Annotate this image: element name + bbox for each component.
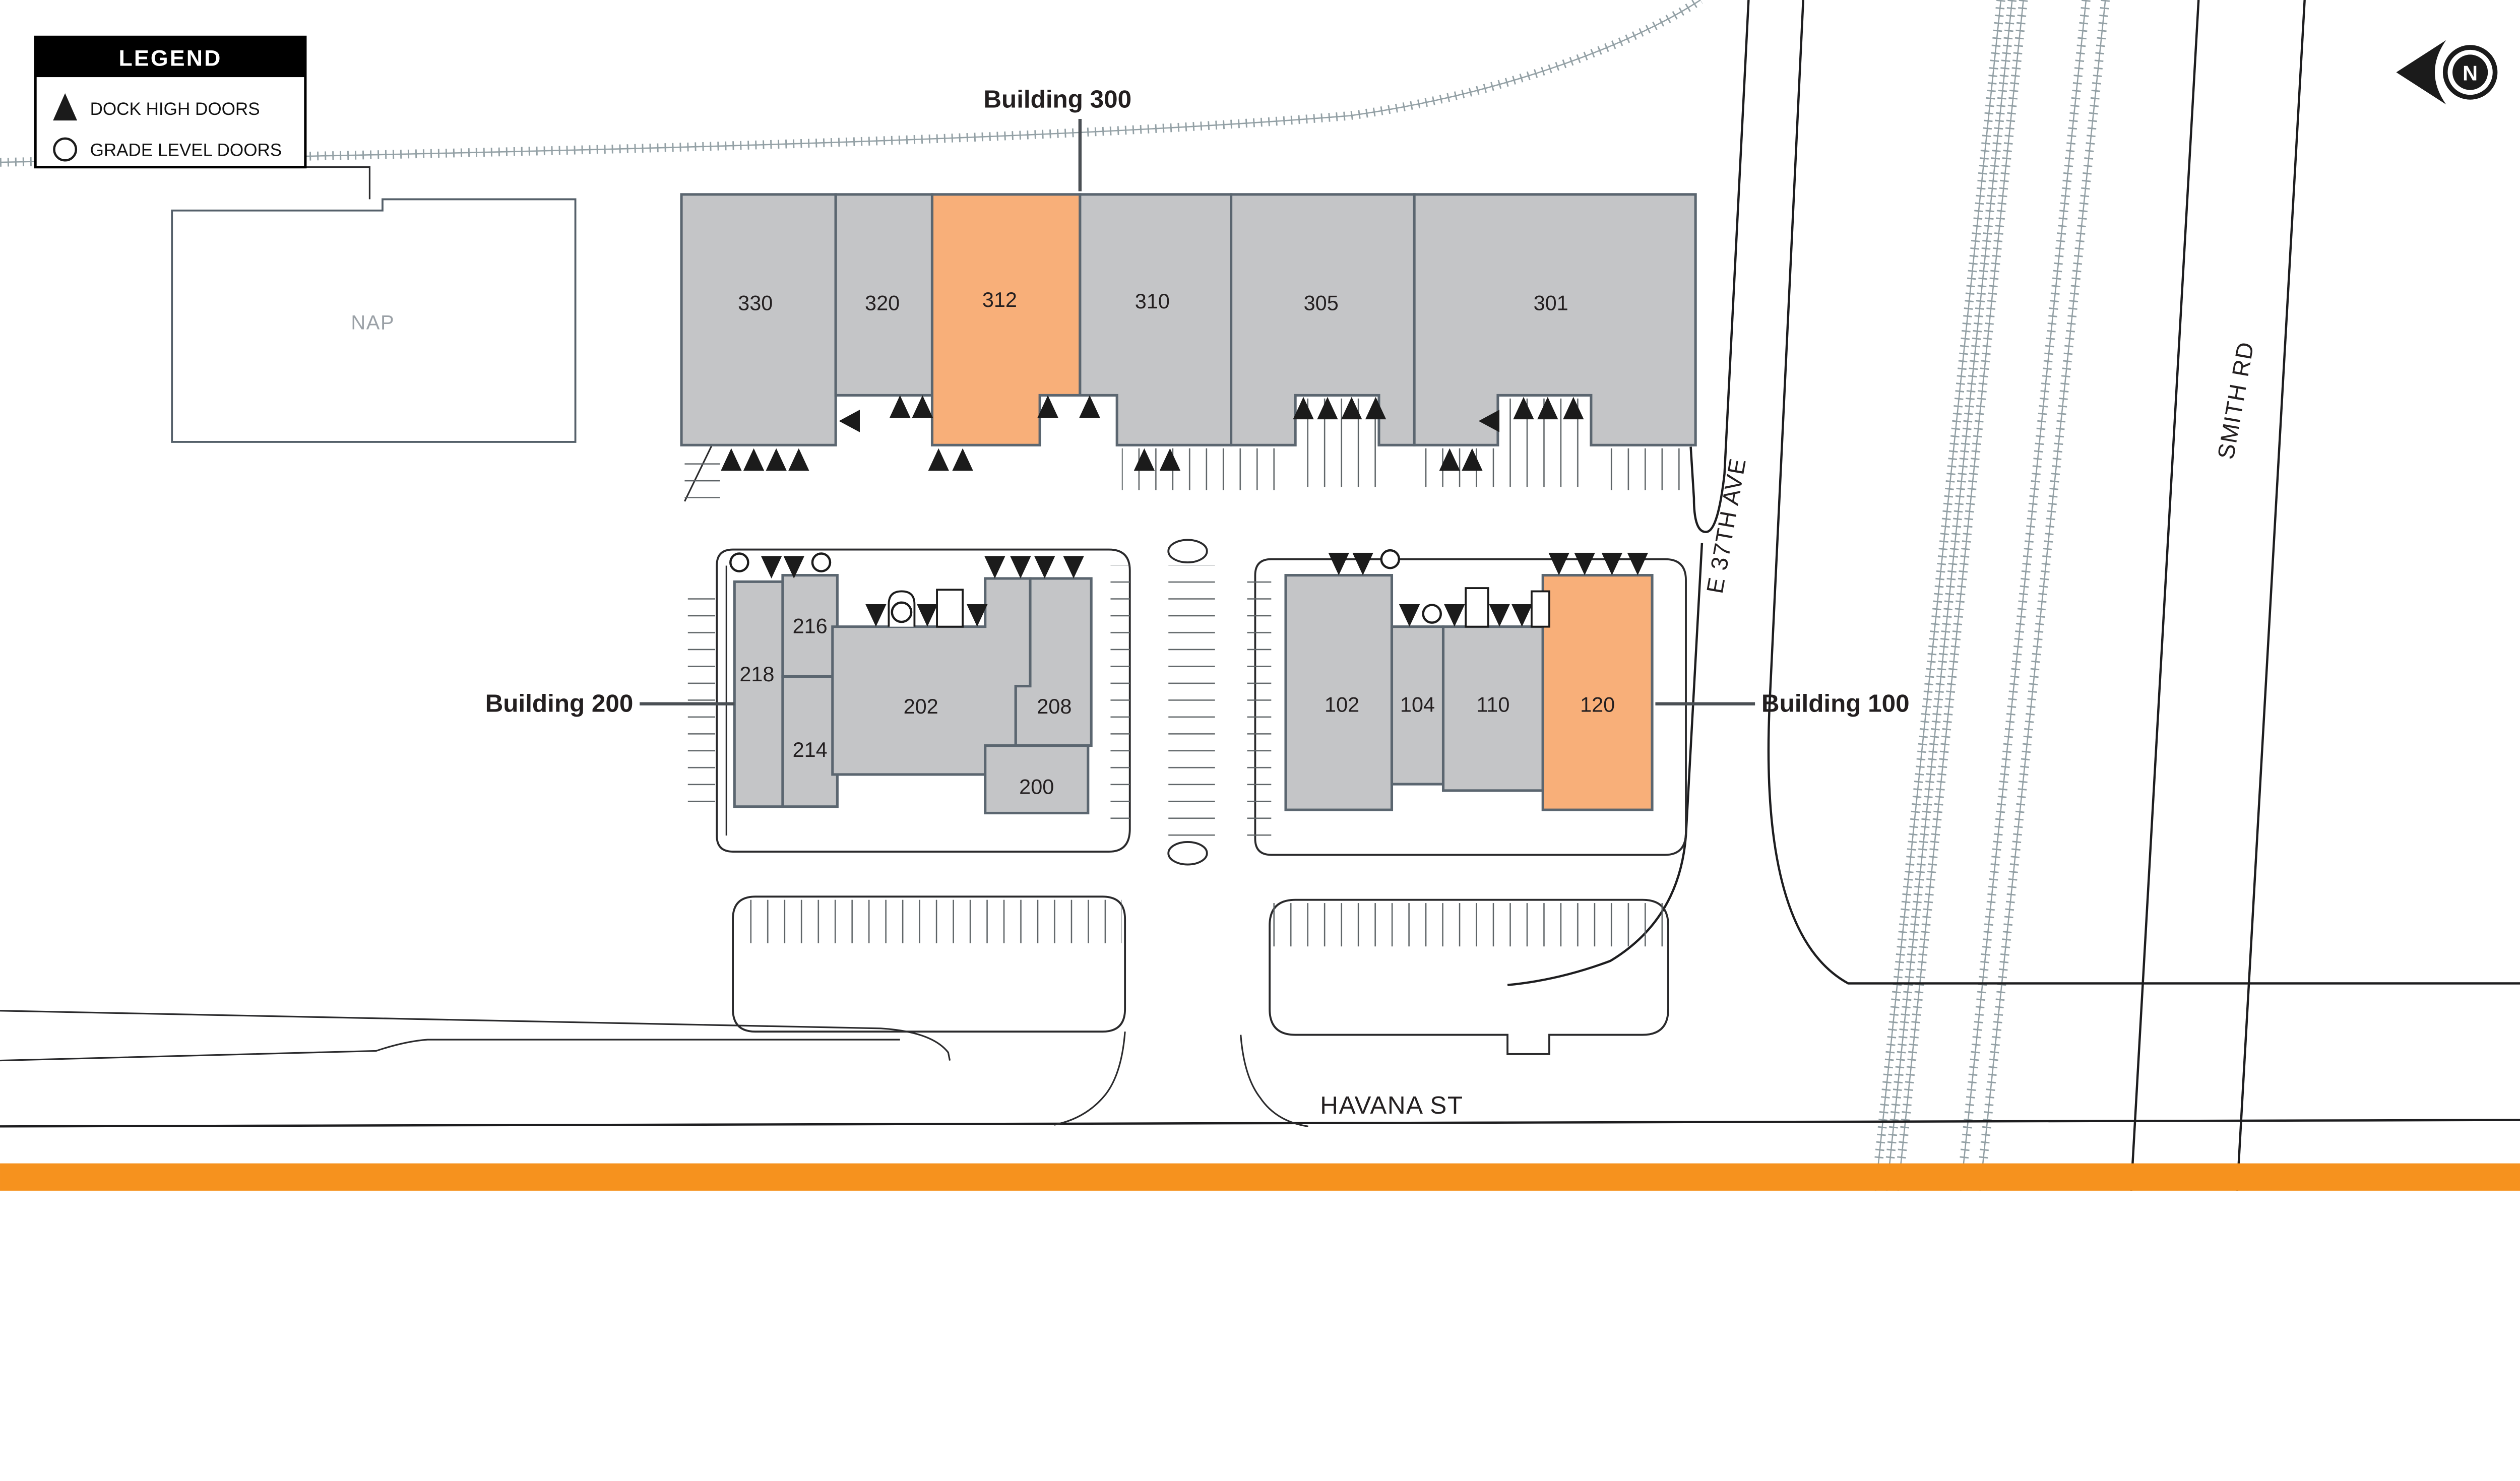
unit-301-label: 301: [1534, 291, 1568, 314]
site-plan-svg: NAP 330 320 312 310: [0, 0, 2520, 1191]
building-100-label: Building 100: [1761, 690, 1910, 718]
dock-high-door-icon: [1548, 553, 1569, 575]
unit-305-label: 305: [1304, 291, 1339, 314]
unit-214-label: 214: [793, 738, 828, 761]
road-e-37th-ave: [1507, 0, 2520, 985]
dock-high-door-icon: [1489, 604, 1509, 627]
dock-high-door-icon: [1511, 604, 1532, 627]
roof-access-bump: [1466, 588, 1488, 627]
dock-high-door-icon: [1063, 556, 1084, 578]
e37-east-curb: [1769, 0, 2520, 984]
dock-high-door-icon: [721, 448, 741, 471]
railroad-track-lines: [1875, 0, 2105, 1191]
dock-high-door-icon: [1010, 556, 1031, 578]
unit-110-label: 110: [1476, 693, 1509, 717]
island-oval: [1168, 540, 1207, 562]
havana-south-edge: [0, 1120, 2520, 1127]
grade-level-door-icon: [1381, 550, 1399, 568]
road-havana-st: [0, 1011, 2520, 1127]
street-label-e-37th-ave: E 37TH AVE: [1702, 456, 1751, 596]
nap-label: NAP: [351, 312, 395, 334]
dock-high-door-icon: [952, 448, 973, 471]
street-label-smith-rd: SMITH RD: [2213, 340, 2259, 462]
roof-access-bump: [937, 590, 963, 626]
grade-level-door-icon: [812, 554, 830, 571]
site-plan: NAP 330 320 312 310: [0, 0, 2520, 1191]
legend-box: LEGEND DOCK HIGH DOORS GRADE LEVEL DOORS: [35, 37, 305, 167]
dock-high-door-icon: [839, 410, 860, 432]
building-200: 218 216 214 202 208 200: [730, 554, 1091, 813]
e37-west-curb: [1691, 0, 1749, 532]
unit-310: [1080, 195, 1231, 445]
dock-high-door-icon: [1034, 556, 1055, 578]
dock-high-door-icon: [761, 556, 782, 578]
dock-high-door-icon: [984, 556, 1005, 578]
dock-high-door-icon: [743, 448, 764, 471]
dock-high-door-icon: [1627, 553, 1648, 575]
dock-high-door-icon: [788, 448, 809, 471]
dock-high-door-icon: [1399, 604, 1420, 627]
island-oval: [1168, 842, 1207, 865]
unit-218-label: 218: [739, 662, 774, 686]
unit-104-label: 104: [1400, 693, 1435, 717]
dock-high-door-icon: [1602, 553, 1622, 575]
dock-high-door-icon: [1079, 395, 1100, 418]
unit-120-label: 120: [1580, 693, 1615, 717]
unit-202-label: 202: [904, 694, 938, 718]
grade-level-door-icon: [54, 139, 76, 160]
dock-high-door-icon: [1329, 553, 1349, 575]
road-smith-rd: [2131, 0, 2304, 1191]
dock-high-door-icon: [912, 395, 933, 418]
accent-strip: [0, 1164, 2520, 1191]
grade-level-door-icon: [730, 554, 748, 571]
unit-310-label: 310: [1135, 289, 1170, 313]
unit-320-label: 320: [865, 291, 900, 314]
grade-level-door-icon: [1423, 605, 1441, 623]
unit-208-label: 208: [1037, 694, 1072, 718]
grade-level-door-icon: [892, 603, 911, 622]
legend-title: LEGEND: [118, 46, 222, 71]
unit-312-label: 312: [982, 288, 1017, 311]
dock-high-door-icon: [917, 604, 937, 627]
dock-high-door-icon: [890, 395, 910, 418]
smith-east-edge: [2237, 0, 2305, 1191]
north-arrow-label: N: [2463, 61, 2478, 85]
smith-west-edge: [2131, 0, 2198, 1191]
roof-access-bump: [1532, 591, 1549, 626]
dock-high-door-icon: [1352, 553, 1373, 575]
street-label-havana-st: HAVANA ST: [1320, 1091, 1463, 1119]
building-300-label: Building 300: [983, 86, 1131, 113]
building-200-label: Building 200: [485, 690, 634, 718]
north-arrow-crescent-icon: [2396, 40, 2446, 105]
north-arrow: N: [2396, 40, 2495, 105]
unit-330: [681, 195, 836, 445]
unit-330-label: 330: [738, 291, 773, 314]
nap-building: NAP: [172, 167, 575, 442]
dock-high-door-icon: [928, 448, 949, 471]
unit-200-label: 200: [1019, 775, 1054, 798]
unit-218: [734, 582, 783, 806]
unit-312: [932, 195, 1080, 445]
building-100: 102 104 110 120: [1286, 550, 1652, 810]
dock-high-door-icon: [865, 604, 886, 627]
dock-high-door-icon: [1574, 553, 1595, 575]
dock-high-door-icon: [766, 448, 786, 471]
dock-high-door-icon: [1444, 604, 1465, 627]
unit-102-label: 102: [1325, 693, 1359, 717]
legend-item-grade-label: GRADE LEVEL DOORS: [90, 140, 282, 160]
legend-item-dock-label: DOCK HIGH DOORS: [90, 99, 260, 119]
unit-216-label: 216: [793, 614, 828, 637]
